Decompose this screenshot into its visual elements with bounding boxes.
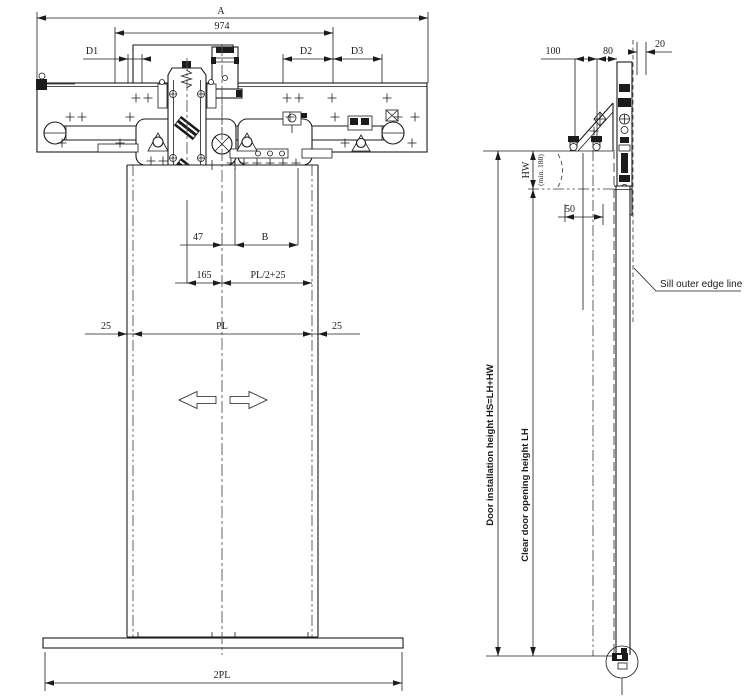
dim-label-d2: D2 — [300, 46, 312, 57]
dim-label-d3: D3 — [351, 46, 363, 57]
dim-label-hw-min: (min. 180) — [536, 154, 545, 186]
dim-label-pl2-25: PL/2+25 — [250, 270, 285, 281]
dim-label-25-right: 25 — [332, 321, 342, 332]
sill-detail-circle — [606, 646, 638, 695]
height-dimensions: Door installation height HS=LH+HW Clear … — [485, 151, 533, 656]
panel-fill — [127, 165, 318, 637]
label-sill-outer-edge: Sill outer edge line — [660, 279, 743, 290]
sill-bar — [43, 638, 403, 648]
hw-dimension: HW (min. 180) — [521, 151, 545, 189]
dim-label-50: 50 — [565, 204, 575, 215]
dim-label-47: 47 — [193, 232, 203, 243]
dim-label-d1: D1 — [86, 46, 98, 57]
bolt-diamond — [594, 112, 606, 126]
technical-drawing-page: A 974 D1 D2 D3 — [0, 0, 754, 699]
dim-label-80: 80 — [603, 46, 613, 57]
hw-brace — [558, 154, 563, 187]
dim-50: 50 — [558, 204, 603, 225]
side-view: 100 80 20 — [483, 39, 743, 695]
dim-label-165: 165 — [197, 270, 212, 281]
dim-label-25-left: 25 — [101, 321, 111, 332]
dim-label-hw: HW — [521, 161, 532, 178]
door-panels — [127, 160, 318, 642]
belt-clamp-right — [302, 149, 332, 158]
dim-label-a: A — [217, 6, 225, 17]
dim-label-20: 20 — [655, 39, 665, 50]
front-view: A 974 D1 D2 D3 — [36, 6, 428, 691]
dim-label-b: B — [262, 232, 269, 243]
belt-clamp-left — [98, 144, 138, 152]
sill-front: 2PL — [43, 638, 403, 691]
dim-label-2pl: 2PL — [214, 670, 231, 681]
label-clear-height: Clear door opening height LH — [520, 428, 531, 562]
label-install-height: Door installation height HS=LH+HW — [485, 364, 496, 526]
door-panel-side — [614, 186, 632, 655]
side-top-dimensions: 100 80 20 — [541, 39, 672, 151]
dim-label-100: 100 — [546, 46, 561, 57]
dim-label-974: 974 — [215, 21, 230, 32]
junction-box — [386, 110, 398, 121]
track-roller-left — [570, 144, 577, 151]
elevator-door-drawing: A 974 D1 D2 D3 — [0, 0, 754, 699]
door-operator-header — [36, 45, 427, 168]
track-roller-right — [593, 144, 600, 151]
